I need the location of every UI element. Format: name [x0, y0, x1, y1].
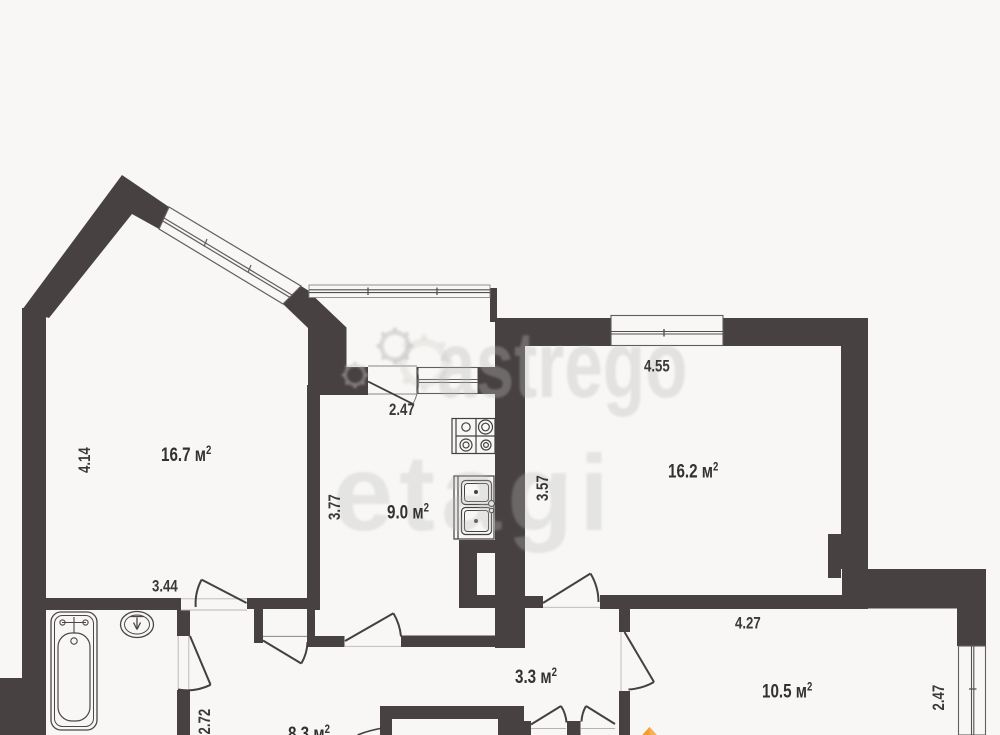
svg-text:3.57: 3.57: [534, 475, 553, 501]
svg-text:8.3 м2: 8.3 м2: [288, 722, 330, 735]
svg-text:etagi: etagi: [333, 432, 615, 553]
svg-text:3.3 м2: 3.3 м2: [515, 665, 557, 687]
svg-text:3.77: 3.77: [326, 494, 345, 520]
svg-text:9.0 м2: 9.0 м2: [387, 501, 429, 523]
svg-text:2.47: 2.47: [930, 685, 949, 711]
svg-text:4.14: 4.14: [76, 447, 95, 473]
svg-text:4.27: 4.27: [735, 614, 761, 633]
svg-text:10.5 м2: 10.5 м2: [762, 680, 812, 702]
svg-text:16.2 м2: 16.2 м2: [668, 460, 718, 482]
svg-text:2.72: 2.72: [196, 709, 215, 735]
svg-text:4.55: 4.55: [644, 357, 670, 376]
svg-text:16.7 м2: 16.7 м2: [161, 443, 211, 465]
svg-text:3.44: 3.44: [152, 577, 178, 596]
svg-text:2.47: 2.47: [389, 401, 415, 420]
